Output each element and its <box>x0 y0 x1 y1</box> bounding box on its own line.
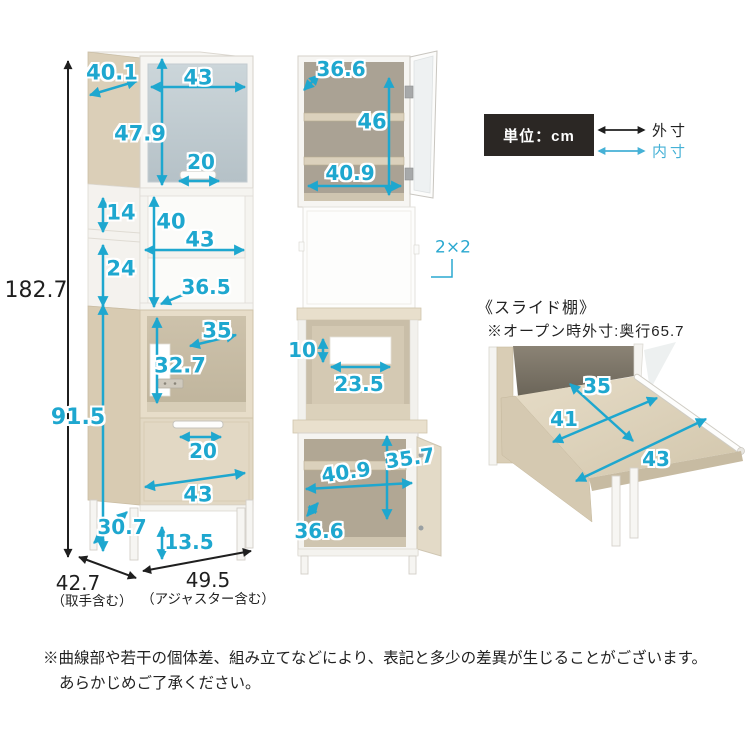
dim-upper-depth: 36.6 <box>316 59 365 79</box>
dim-total-width-note: （アジャスター含む） <box>141 592 275 606</box>
dim-upper-height: 46 <box>357 112 386 133</box>
dim-slide-outer-width: 43 <box>642 449 670 469</box>
dim-drawer-width: 43 <box>183 485 212 506</box>
middle-shelf-board <box>148 251 245 258</box>
dim-oven-width: 35 <box>202 321 231 342</box>
dim-lower-width: 40.9 <box>320 459 372 486</box>
legend-outer-label: 外寸 <box>652 120 688 141</box>
outlet <box>158 379 183 388</box>
outlet-pointer <box>431 259 452 277</box>
outlet-label: 2×2 <box>435 240 471 257</box>
legend-inner-label: 内寸 <box>652 141 688 162</box>
slide-shelf-title: 《スライド棚》 <box>477 294 596 318</box>
slide-shelf-note: ※オープン時外寸:奥行65.7 <box>487 320 684 341</box>
cord-hole-cutout <box>330 337 391 364</box>
dim-lower-height: 91.5 <box>51 407 105 429</box>
door-hinge <box>405 86 413 98</box>
dim-shelf-inner-depth: 36.5 <box>181 277 230 297</box>
dim-slide-inner-width: 41 <box>550 409 578 429</box>
dim-shelf-inner-width: 43 <box>185 230 214 251</box>
flap-door-panel <box>303 207 415 308</box>
dim-top-depth: 40.1 <box>86 63 138 84</box>
legend-arrows <box>599 130 644 151</box>
slide-shelf-illustration <box>489 342 745 546</box>
disclaimer-line2: あらかじめご了承ください。 <box>43 671 735 696</box>
dim-side-gap-lower: 24 <box>106 259 135 280</box>
disclaimer: ※曲線部や若干の個体差、組み立てなどにより、表記と多少の差異が生じることがござい… <box>43 646 735 696</box>
counter-top-lower <box>293 420 427 433</box>
dim-leg-height: 13.5 <box>164 532 213 552</box>
dim-total-height: 182.7 <box>5 280 68 302</box>
dim-glass-handle: 20 <box>187 152 215 172</box>
dim-total-depth: 42.7 <box>56 573 101 593</box>
dim-top-width: 43 <box>183 68 212 89</box>
dim-cord-hole-width: 23.5 <box>334 374 383 394</box>
dim-lower-depth: 36.6 <box>294 521 343 541</box>
door-hinge <box>405 168 413 180</box>
dim-shelf-inner-height: 40 <box>156 212 185 233</box>
dim-total-depth-note: （取手含む） <box>52 594 133 608</box>
dim-side-gap-upper: 14 <box>106 203 135 224</box>
dim-glass-height: 47.9 <box>114 124 166 145</box>
dim-slide-depth: 35 <box>583 376 611 396</box>
counter-top-upper <box>297 308 421 320</box>
dim-base-depth: 30.7 <box>97 517 146 537</box>
dim-upper-width: 40.9 <box>325 163 374 183</box>
product-dimension-diagram: { "legend": { "unit": "単位：cm", "outer": … <box>0 0 750 750</box>
dim-drawer-handle: 20 <box>189 441 217 461</box>
dim-total-width: 49.5 <box>186 570 231 590</box>
drawer-handle <box>173 421 223 428</box>
dim-cord-hole-height: 10 <box>288 340 316 360</box>
dim-lower-height: 35.7 <box>384 445 436 472</box>
unit-legend-box: 単位：cm <box>484 114 594 156</box>
legs <box>301 556 416 574</box>
dim-oven-height: 32.7 <box>154 356 206 377</box>
disclaimer-line1: ※曲線部や若干の個体差、組み立てなどにより、表記と多少の差異が生じることがござい… <box>43 646 735 671</box>
